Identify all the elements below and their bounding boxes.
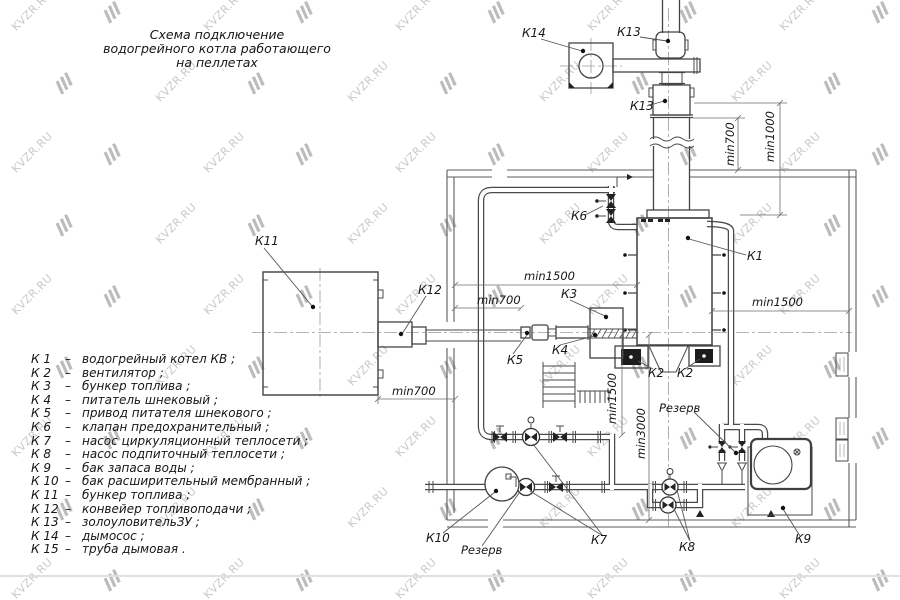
legend-item-text: насос циркуляционный теплосети ; xyxy=(82,434,308,448)
legend-item: К 5–привод питателя шнекового ; xyxy=(31,406,310,420)
legend-item: К 12–конвейер топливоподачи ; xyxy=(31,502,310,516)
legend-item-dash: – xyxy=(65,502,82,516)
diagram-labels: К14 К13 К13 К6 К1 К3 К11 К12 К5 К4 К2 К2… xyxy=(255,25,811,557)
legend-item-text: питатель шнековый ; xyxy=(82,393,218,407)
legend-item: К 1–водогрейный котел КВ ; xyxy=(31,352,310,366)
dim-top-min1500: min1500 xyxy=(524,269,575,283)
legend-item-text: привод питателя шнекового ; xyxy=(82,406,272,420)
legend-item-key: К 9 xyxy=(31,461,65,475)
label-k14: К14 xyxy=(522,26,546,40)
legend-item-text: вентилятор ; xyxy=(82,366,164,380)
label-k13-body: К13 xyxy=(630,99,654,113)
label-k2-right: К2 xyxy=(677,366,693,380)
legend-item-dash: – xyxy=(65,461,82,475)
legend-item-key: К 2 xyxy=(31,366,65,380)
water-tank-k9 xyxy=(748,439,812,515)
service-ladder xyxy=(543,362,610,408)
legend-item: К 8–насос подпиточный теплосети ; xyxy=(31,447,310,461)
chimney-k15 xyxy=(663,0,680,33)
legend-item-text: конвейер топливоподачи ; xyxy=(82,502,251,516)
schematic-canvas: KVZR.RUKVZR.RUKVZR.RUKVZR.RUKVZR.RUKVZR.… xyxy=(0,0,900,600)
legend-item: К 15–труба дымовая . xyxy=(31,542,310,556)
label-k3: К3 xyxy=(561,287,577,301)
legend-item-dash: – xyxy=(65,379,82,393)
legend-item-text: дымосос ; xyxy=(82,529,145,543)
legend-item-text: труба дымовая . xyxy=(82,542,186,556)
legend-item-text: бункер топлива ; xyxy=(82,488,190,502)
legend-item-text: бак запаса воды ; xyxy=(82,461,195,475)
label-k13-top: К13 xyxy=(617,25,641,39)
label-k11: К11 xyxy=(255,234,279,248)
legend-item: К 11–бункер топлива ; xyxy=(31,488,310,502)
drawing-title: Схема подключение водогрейного котла раб… xyxy=(88,28,346,70)
legend-item-text: клапан предохранительный ; xyxy=(82,420,269,434)
legend-item-key: К 13 xyxy=(31,515,65,529)
dim-vert-min3000: min3000 xyxy=(634,408,648,459)
fan-k2-left xyxy=(615,346,648,368)
label-k1: К1 xyxy=(747,249,763,263)
legend-item-dash: – xyxy=(65,393,82,407)
legend-item-text: бак расширительный мембранный ; xyxy=(82,474,310,488)
legend-item: К 6–клапан предохранительный ; xyxy=(31,420,310,434)
legend-item-dash: – xyxy=(65,474,82,488)
label-k9: К9 xyxy=(795,532,811,546)
legend-item-text: водогрейный котел КВ ; xyxy=(82,352,235,366)
legend-item-dash: – xyxy=(65,366,82,380)
label-k8: К8 xyxy=(679,540,696,554)
air-vent xyxy=(617,174,633,187)
legend-item-dash: – xyxy=(65,447,82,461)
label-k12: К12 xyxy=(418,283,442,297)
legend-item-key: К 8 xyxy=(31,447,65,461)
label-k5: К5 xyxy=(507,353,523,367)
legend-item-text: насос подпиточный теплосети ; xyxy=(82,447,285,461)
legend-item: К 10–бак расширительный мембранный ; xyxy=(31,474,310,488)
label-reserve-bottom: Резерв xyxy=(461,543,503,557)
label-k7: К7 xyxy=(591,533,608,547)
dim-right-min1500: min1500 xyxy=(752,295,803,309)
legend-item-key: К 10 xyxy=(31,474,65,488)
ash-collector-k13 xyxy=(613,32,700,210)
legend-item: К 4–питатель шнековый ; xyxy=(31,393,310,407)
boiler-k1 xyxy=(623,210,726,345)
dim-vert-min1500: min1500 xyxy=(605,373,619,424)
legend-item-key: К 15 xyxy=(31,542,65,556)
legend-item-dash: – xyxy=(65,542,82,556)
legend-item-key: К 5 xyxy=(31,406,65,420)
legend-item-key: К 7 xyxy=(31,434,65,448)
dim-vert-min700: min700 xyxy=(723,122,737,166)
legend-item-key: К 14 xyxy=(31,529,65,543)
leader-lines xyxy=(264,37,800,546)
legend-item: К 9–бак запаса воды ; xyxy=(31,461,310,475)
legend-item: К 14–дымосос ; xyxy=(31,529,310,543)
legend-item: К 13–золоуловительЗУ ; xyxy=(31,515,310,529)
legend-item-dash: – xyxy=(65,529,82,543)
legend-item-text: бункер топлива ; xyxy=(82,379,190,393)
legend-item: К 2–вентилятор ; xyxy=(31,366,310,380)
legend-item-key: К 4 xyxy=(31,393,65,407)
legend-item: К 3–бункер топлива ; xyxy=(31,379,310,393)
legend-item-key: К 6 xyxy=(31,420,65,434)
title-line-2: водогрейного котла работающего xyxy=(88,42,346,56)
legend-item-key: К 3 xyxy=(31,379,65,393)
label-k6: К6 xyxy=(571,209,588,223)
legend-item-key: К 1 xyxy=(31,352,65,366)
legend-item-dash: – xyxy=(65,420,82,434)
dim-topleft-min700: min700 xyxy=(477,293,521,307)
legend-item-dash: – xyxy=(65,515,82,529)
title-line-3: на пеллетах xyxy=(88,56,346,70)
legend-item-dash: – xyxy=(65,488,82,502)
label-reserve-top: Резерв xyxy=(659,401,701,415)
legend-item-dash: – xyxy=(65,434,82,448)
legend-item-key: К 11 xyxy=(31,488,65,502)
legend-item-key: К 12 xyxy=(31,502,65,516)
legend-item-text: золоуловительЗУ ; xyxy=(82,515,200,529)
dim-bottomleft-min700: min700 xyxy=(392,384,436,398)
wall-tag-box xyxy=(836,353,848,461)
legend-item-dash: – xyxy=(65,406,82,420)
title-line-1: Схема подключение xyxy=(88,28,346,42)
label-k2-left: К2 xyxy=(648,366,664,380)
legend-item-dash: – xyxy=(65,352,82,366)
label-k4: К4 xyxy=(552,343,568,357)
component-legend: К 1–водогрейный котел КВ ;К 2–вентилятор… xyxy=(31,352,310,556)
dim-vert-min1000: min1000 xyxy=(763,111,777,162)
label-k10: К10 xyxy=(426,531,450,545)
legend-item: К 7–насос циркуляционный теплосети ; xyxy=(31,434,310,448)
